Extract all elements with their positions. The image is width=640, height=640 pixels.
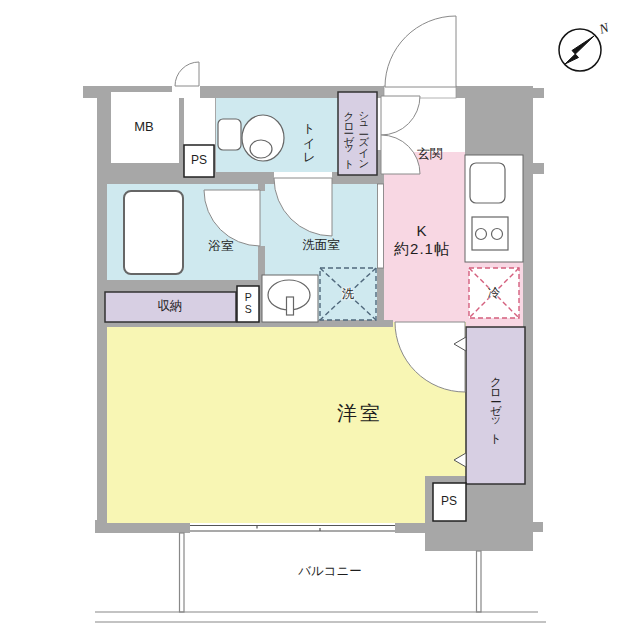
label-ps-bottom: PS [441,494,457,508]
washbasin-faucet-icon [287,297,294,315]
label-kitchen-name: K [394,222,450,240]
kitchen-sink-icon [470,163,505,203]
label-closet: クローゼット [488,368,502,440]
label-kitchen-size: 約2.1帖 [394,240,450,258]
label-main-room: 洋室 [337,401,383,425]
entrance-door-arc [385,16,456,87]
label-shoes-closet-line2: クローゼット [343,104,356,164]
floor-plan: MB PS トイレ シューズイン クローゼット 玄関 K 約2.1帖 浴室 洗面… [0,0,640,640]
label-washroom: 洗面室 [302,238,340,253]
washroom-sliding-door [378,184,384,268]
service-strip [184,98,215,145]
toilet-tank-icon [218,119,241,150]
balcony-divider-left [180,533,185,612]
floor-plan-drawing [0,0,640,640]
label-ps-top: PS [191,153,207,167]
label-meter-box: MB [134,119,154,135]
label-kitchen: K 約2.1帖 [394,222,450,258]
toilet-bowl-icon [242,115,284,161]
balcony-divider-right [477,551,482,612]
label-balcony: バルコニー [298,564,362,579]
label-toilet: トイレ [302,114,316,158]
compass-icon [559,29,601,71]
meter-box-door-arc [175,62,199,86]
label-shoes-closet-line1: シューズイン [358,104,371,164]
label-washer: 洗 [342,287,355,302]
label-fridge: 冷 [488,286,501,301]
label-storage: 収納 [158,299,183,314]
label-ps-mid: PS [242,291,255,315]
bathtub-icon [124,191,183,274]
window-sliding [190,526,395,532]
label-bathroom: 浴室 [209,239,234,254]
label-entrance: 玄関 [417,146,443,162]
